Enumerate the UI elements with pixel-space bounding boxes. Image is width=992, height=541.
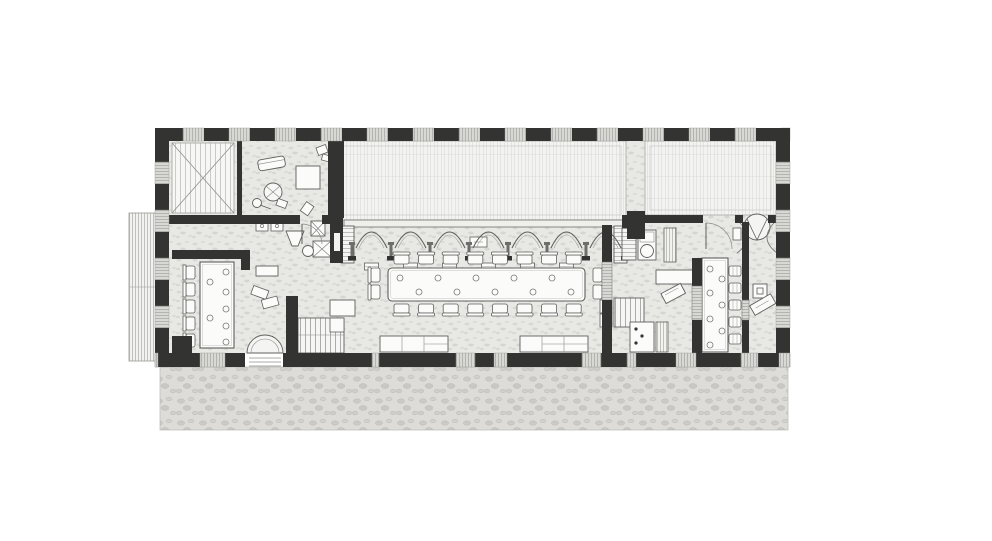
chair bbox=[566, 304, 581, 313]
wall-window bbox=[582, 353, 601, 367]
wall-pier bbox=[475, 353, 494, 367]
arched-garden-door bbox=[247, 335, 283, 366]
wall-pier bbox=[601, 353, 627, 367]
wall-window bbox=[551, 128, 572, 141]
chair bbox=[419, 304, 434, 313]
column-base bbox=[582, 256, 590, 261]
chair bbox=[517, 304, 532, 313]
wall-window bbox=[494, 353, 507, 367]
chair-back bbox=[565, 252, 582, 255]
wall-pier bbox=[572, 128, 597, 141]
chair bbox=[186, 300, 195, 313]
wall-pier bbox=[434, 128, 459, 141]
chair-back bbox=[491, 252, 508, 255]
bar-counter-area bbox=[702, 258, 741, 352]
wall-window bbox=[200, 353, 225, 367]
wall-window bbox=[776, 306, 790, 328]
chair-back bbox=[541, 313, 558, 316]
bar-counter bbox=[702, 258, 728, 352]
wall-window bbox=[505, 128, 526, 141]
wall-pier bbox=[283, 353, 372, 367]
chair bbox=[566, 255, 581, 264]
refectory-table bbox=[200, 262, 234, 348]
chair bbox=[443, 255, 458, 264]
chair bbox=[468, 255, 483, 264]
wall-window bbox=[597, 128, 618, 141]
wall-pier bbox=[155, 232, 169, 258]
wall-window bbox=[776, 210, 790, 232]
wall-window bbox=[676, 353, 696, 367]
chair bbox=[542, 304, 557, 313]
wall-window bbox=[155, 306, 169, 328]
wall-pier bbox=[526, 128, 551, 141]
chair-back bbox=[368, 267, 371, 283]
chair-back bbox=[393, 313, 410, 316]
wall-pier bbox=[155, 328, 169, 354]
wall-window bbox=[275, 128, 296, 141]
chair bbox=[492, 304, 507, 313]
column-cap bbox=[349, 242, 355, 245]
wall-pier bbox=[758, 353, 779, 367]
column-shaft bbox=[351, 244, 354, 256]
wc-fixture bbox=[303, 246, 314, 257]
chair-back bbox=[183, 282, 186, 297]
wall-pier bbox=[776, 128, 790, 162]
terrace-paving bbox=[160, 367, 788, 430]
wall-pier bbox=[379, 353, 456, 367]
wall-window bbox=[741, 353, 758, 367]
chair bbox=[186, 266, 195, 279]
stool bbox=[729, 317, 741, 327]
chair-back bbox=[418, 252, 435, 255]
chair-back bbox=[565, 313, 582, 316]
column-base bbox=[348, 256, 356, 261]
wall-pier bbox=[155, 128, 169, 162]
wall-window bbox=[459, 128, 480, 141]
chair-back bbox=[442, 313, 459, 316]
chair-back bbox=[516, 252, 533, 255]
wall-window bbox=[776, 162, 790, 184]
wall-pier bbox=[710, 128, 735, 141]
stool bbox=[729, 266, 741, 276]
wall-pier bbox=[776, 328, 790, 354]
column-cap bbox=[583, 242, 589, 245]
wall-pier bbox=[507, 353, 582, 367]
chair bbox=[542, 255, 557, 264]
column-shaft bbox=[390, 244, 393, 256]
chair bbox=[394, 255, 409, 264]
wall-pier bbox=[342, 128, 367, 141]
chair bbox=[186, 283, 195, 296]
wall-pier bbox=[664, 128, 689, 141]
chair-back bbox=[467, 313, 484, 316]
chair-back bbox=[541, 252, 558, 255]
wall-window bbox=[183, 128, 204, 141]
wall-window bbox=[456, 353, 475, 367]
wall-window bbox=[155, 353, 158, 367]
chair bbox=[394, 304, 409, 313]
column-cap bbox=[544, 242, 550, 245]
wall-window bbox=[367, 128, 388, 141]
wall-window bbox=[689, 128, 710, 141]
stock-image-canvas bbox=[0, 0, 992, 541]
column-cap bbox=[466, 242, 472, 245]
wall-pier bbox=[155, 184, 169, 210]
wall-window bbox=[155, 258, 169, 280]
column-cap bbox=[505, 242, 511, 245]
wall-window bbox=[372, 353, 379, 367]
floor-plan-drawing bbox=[0, 0, 992, 541]
skylight-roof-right bbox=[645, 141, 776, 215]
dining-table bbox=[388, 268, 585, 301]
wall-pier bbox=[480, 128, 505, 141]
chair-back bbox=[368, 284, 371, 300]
chair bbox=[492, 255, 507, 264]
wall-pier bbox=[158, 353, 200, 367]
wall-pier bbox=[388, 128, 413, 141]
chair bbox=[371, 268, 380, 282]
column-cap bbox=[427, 242, 433, 245]
wall-window bbox=[627, 353, 636, 367]
exterior-ramp bbox=[129, 213, 157, 361]
stool bbox=[729, 334, 741, 344]
stool bbox=[729, 283, 741, 293]
wall-window bbox=[155, 210, 169, 232]
column-cap bbox=[388, 242, 394, 245]
wall-pier bbox=[636, 353, 676, 367]
chair-back bbox=[467, 252, 484, 255]
chair-back bbox=[183, 316, 186, 331]
chair bbox=[468, 304, 483, 313]
wall-window bbox=[779, 353, 790, 367]
chair-back bbox=[516, 313, 533, 316]
wall-window bbox=[321, 128, 342, 141]
wall-window bbox=[643, 128, 664, 141]
chair bbox=[593, 268, 602, 282]
wall-pier bbox=[776, 280, 790, 306]
wall-window bbox=[155, 162, 169, 184]
chair bbox=[371, 285, 380, 299]
chair-back bbox=[418, 313, 435, 316]
chair-back bbox=[442, 252, 459, 255]
skylight-roof-left bbox=[338, 141, 626, 220]
chair bbox=[443, 304, 458, 313]
chair bbox=[593, 285, 602, 299]
wall-pier bbox=[296, 128, 321, 141]
wall-window bbox=[413, 128, 434, 141]
wall-window bbox=[776, 258, 790, 280]
wall-pier bbox=[776, 232, 790, 258]
chair bbox=[186, 317, 195, 330]
chair-back bbox=[393, 252, 410, 255]
wall-pier bbox=[225, 353, 245, 367]
chair-back bbox=[183, 299, 186, 314]
chair-back bbox=[183, 265, 186, 280]
wall-pier bbox=[155, 280, 169, 306]
wall-pier bbox=[618, 128, 643, 141]
void-room bbox=[172, 143, 234, 213]
wall-pier bbox=[250, 128, 275, 141]
chair bbox=[517, 255, 532, 264]
wall-window bbox=[229, 128, 250, 141]
wall-pier bbox=[204, 128, 229, 141]
column-shaft bbox=[585, 244, 588, 256]
chair-back bbox=[491, 313, 508, 316]
wall-pier bbox=[696, 353, 741, 367]
chair bbox=[419, 255, 434, 264]
stool bbox=[729, 300, 741, 310]
wall-window bbox=[735, 128, 756, 141]
wall-pier bbox=[776, 184, 790, 210]
